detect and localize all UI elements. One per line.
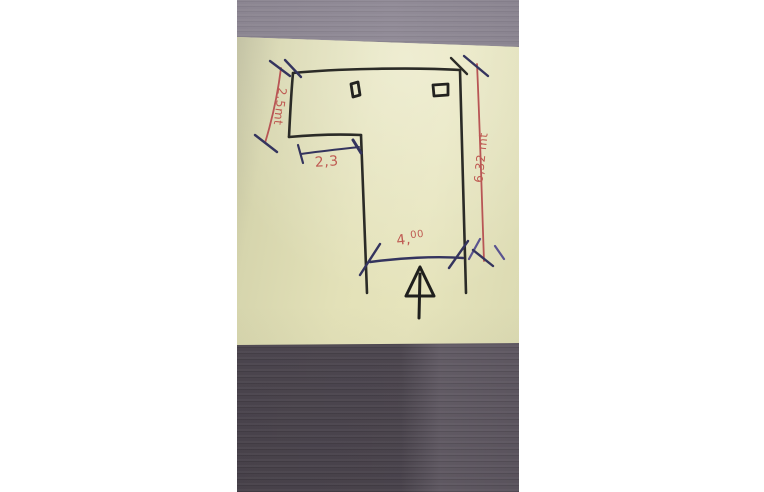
left-dimension-label: 2,5mt [271, 87, 290, 126]
right-dimension: 6,32 mt [464, 56, 504, 266]
wall-left [289, 73, 293, 137]
bottom-dimension-label: 4,00 [395, 229, 425, 249]
door-dim-line [370, 257, 463, 262]
window-symbols [351, 82, 448, 97]
window-left-icon [351, 82, 360, 97]
right-dimension-label: 6,32 mt [471, 132, 490, 184]
right-dim-tick-bottom-2 [495, 246, 504, 259]
floorplan-sketch: 2,5mt 2,3 4,00 6,32 mt [237, 0, 519, 492]
door-dimension [360, 241, 468, 275]
wall-notch [289, 135, 361, 137]
door-dim-tick-right-2 [469, 239, 480, 259]
bottom-dimension-superscript: 00 [410, 229, 425, 242]
photo-of-sticky-note: 2,5mt 2,3 4,00 6,32 mt [237, 0, 519, 492]
entrance-arrow-tail [419, 274, 420, 318]
page: 2,5mt 2,3 4,00 6,32 mt [0, 0, 764, 492]
door-dim-tick-left [360, 244, 380, 275]
entrance-arrow-icon [406, 267, 434, 318]
notch-dimension: 2,3 [298, 140, 361, 171]
wall-top [293, 69, 460, 73]
window-right-icon [433, 84, 448, 96]
room-walls [289, 69, 466, 293]
wall-right [460, 70, 466, 293]
left-dimension: 2,5mt [255, 61, 290, 152]
notch-dimension-label: 2,3 [314, 153, 339, 171]
